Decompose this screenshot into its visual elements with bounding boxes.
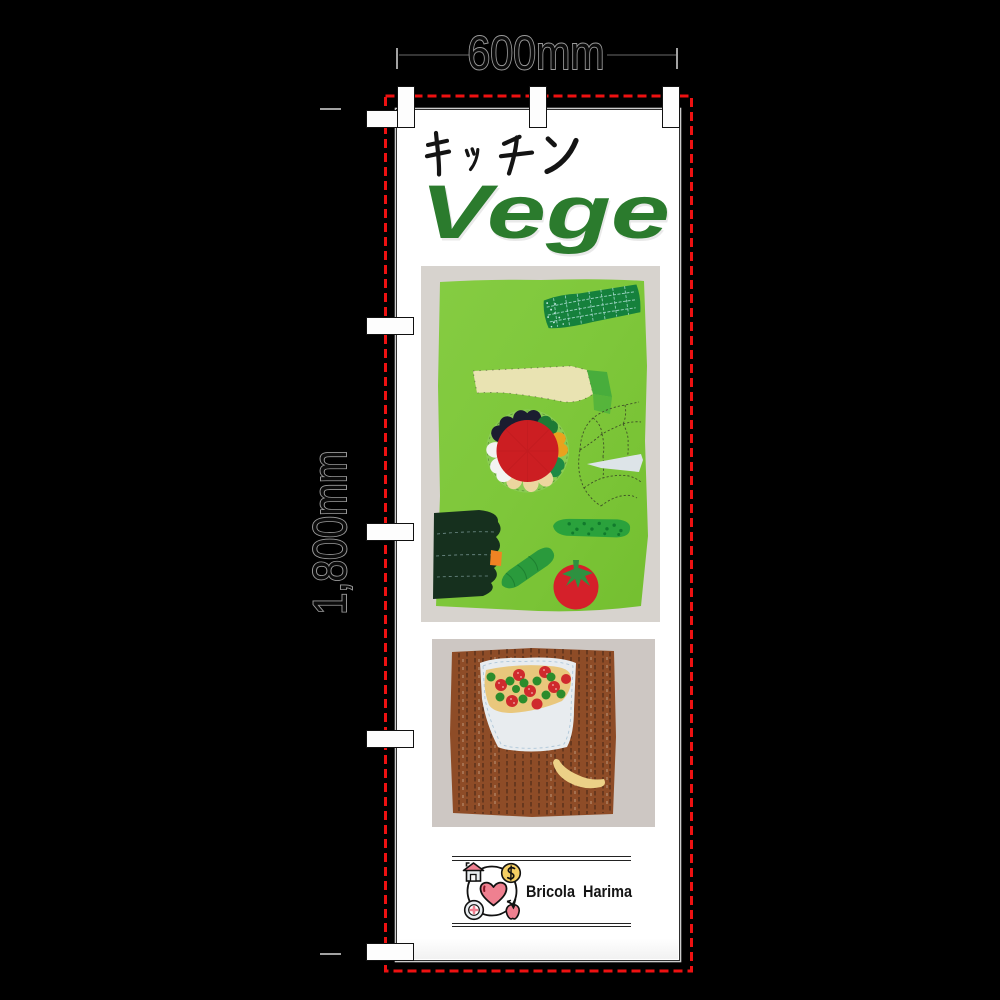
svg-text:Vege: Vege <box>420 170 670 255</box>
